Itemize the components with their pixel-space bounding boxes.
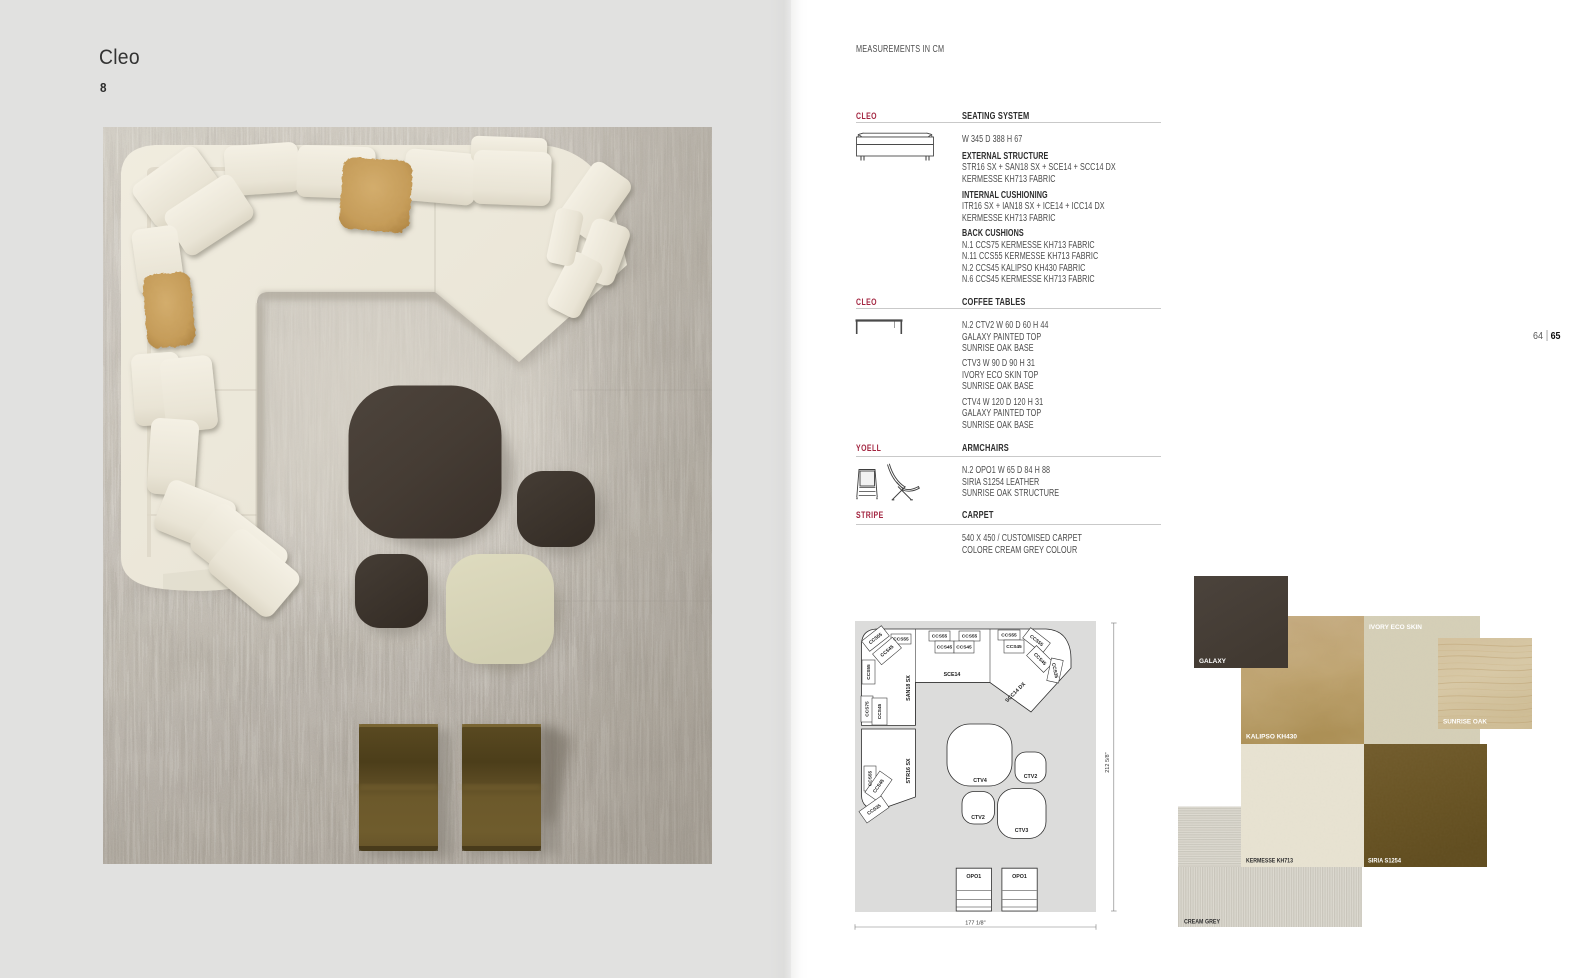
svg-text:CCS55: CCS55	[866, 664, 872, 680]
svg-text:CREAM GREY: CREAM GREY	[1184, 919, 1220, 926]
svg-text:177 1/8": 177 1/8"	[965, 921, 985, 927]
svg-text:SCE14: SCE14	[944, 672, 961, 678]
svg-text:CCS55: CCS55	[893, 637, 909, 643]
svg-text:CCS55: CCS55	[962, 634, 978, 640]
svg-text:CCS45: CCS45	[1006, 644, 1022, 650]
svg-text:SUNRISE OAK: SUNRISE OAK	[1443, 719, 1487, 726]
svg-text:212 5/8": 212 5/8"	[1105, 752, 1111, 772]
svg-text:CCS55: CCS55	[868, 770, 874, 786]
svg-text:CTV3: CTV3	[1015, 828, 1029, 834]
svg-text:STR16 SX: STR16 SX	[906, 758, 912, 783]
svg-text:CTV2: CTV2	[971, 815, 985, 821]
svg-text:CTV2: CTV2	[1024, 774, 1038, 780]
svg-text:CCS75: CCS75	[865, 701, 871, 717]
svg-text:KALIPSO KH430: KALIPSO KH430	[1246, 734, 1297, 741]
svg-text:CCS45: CCS45	[937, 645, 953, 651]
svg-text:SAN18 SX: SAN18 SX	[906, 675, 912, 701]
svg-text:OPO1: OPO1	[966, 874, 981, 880]
svg-text:IVORY ECO SKIN: IVORY ECO SKIN	[1369, 624, 1422, 631]
svg-text:CCS45: CCS45	[877, 703, 883, 719]
svg-text:CCS55: CCS55	[1001, 633, 1017, 639]
svg-text:SIRIA S1254: SIRIA S1254	[1368, 858, 1401, 865]
svg-text:KERMESSE KH713: KERMESSE KH713	[1246, 858, 1293, 865]
svg-text:CCS55: CCS55	[932, 634, 948, 640]
svg-text:CCS45: CCS45	[956, 645, 972, 651]
svg-text:OPO1: OPO1	[1012, 874, 1027, 880]
svg-text:GALAXY: GALAXY	[1199, 658, 1226, 665]
svg-text:CTV4: CTV4	[973, 778, 987, 784]
